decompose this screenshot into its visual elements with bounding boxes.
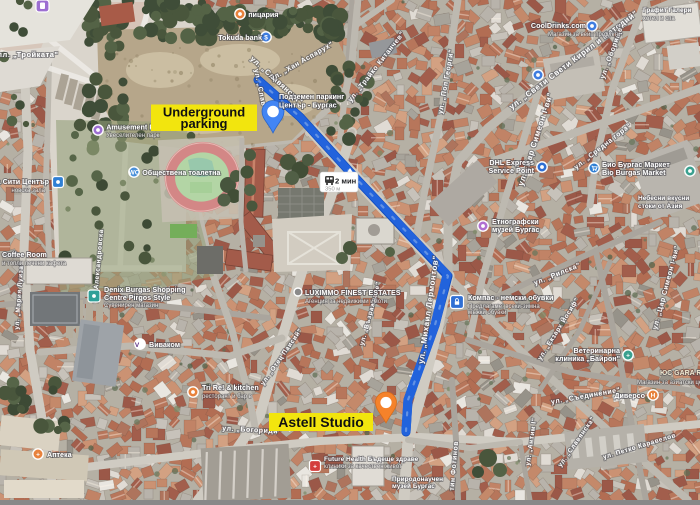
svg-text:музей Бургас: музей Бургас <box>492 225 539 234</box>
svg-text:Небесни вкусни: Небесни вкусни <box>638 194 689 202</box>
svg-text:parking: parking <box>181 116 228 131</box>
svg-text:и топли печени кафета: и топли печени кафета <box>2 261 67 267</box>
svg-text:Bio Burgas Market: Bio Burgas Market <box>602 168 666 177</box>
svg-text:пицария: пицария <box>248 10 278 19</box>
svg-text:$: $ <box>264 34 268 41</box>
svg-text:Агенция за недвижими имоти: Агенция за недвижими имоти <box>305 299 387 305</box>
svg-text:Виваком: Виваком <box>149 340 180 349</box>
svg-text:Обществена тоалетна: Обществена тоалетна <box>142 168 221 177</box>
svg-text:Център - Бургас: Център - Бургас <box>279 101 337 110</box>
svg-text:а Сити Център: а Сити Център <box>0 177 50 186</box>
svg-text:H: H <box>651 392 656 399</box>
svg-text:музей Бургас: музей Бургас <box>392 482 435 490</box>
svg-text:LUXIMMO FINEST ESTATES: LUXIMMO FINEST ESTATES <box>305 288 401 297</box>
svg-text:Astell Studio: Astell Studio <box>278 414 364 430</box>
svg-text:Tokuda bank: Tokuda bank <box>218 33 262 42</box>
svg-text:V: V <box>135 342 140 349</box>
svg-text:2 мин: 2 мин <box>335 177 357 186</box>
svg-text:Диверсо: Диверсо <box>614 391 645 400</box>
svg-text:хотел и спа: хотел и спа <box>643 16 675 22</box>
svg-text:+: + <box>313 463 317 470</box>
svg-text:+: + <box>626 352 630 359</box>
svg-text:Магазин за вейп продукти: Магазин за вейп продукти <box>548 31 620 38</box>
svg-text:пл. „Тройката": пл. „Тройката" <box>0 50 58 59</box>
svg-text:клиника „Байрон": клиника „Байрон" <box>555 354 620 363</box>
svg-text:+: + <box>36 451 40 458</box>
svg-text:Магазин за азиатски цен.: Магазин за азиатски цен. <box>637 380 700 386</box>
svg-text:мъжки обувки: мъжки обувки <box>468 310 506 316</box>
svg-text:новска зала: новска зала <box>12 188 46 194</box>
svg-text:350 м: 350 м <box>325 187 340 193</box>
svg-text:Centre Pirgos Style: Centre Pirgos Style <box>104 293 170 302</box>
svg-text:Графит Галери: Графит Галери <box>643 7 692 14</box>
svg-text:Coffee Room: Coffee Room <box>2 250 47 259</box>
svg-text:стоки от Азия: стоки от Азия <box>638 203 682 210</box>
svg-text:WC: WC <box>129 169 140 176</box>
svg-text:Аптека: Аптека <box>47 450 73 459</box>
svg-text:Сувенирен магазин: Сувенирен магазин <box>104 303 158 309</box>
svg-text:Компас - немски обувки: Компас - немски обувки <box>468 293 553 302</box>
svg-text:CoolDrinks.com: CoolDrinks.com <box>531 21 586 30</box>
svg-text:клиники за качествен живот: клиники за качествен живот <box>324 464 402 470</box>
svg-text:Future Health Бъдеще здраве: Future Health Бъдеще здраве <box>324 456 419 463</box>
svg-text:Service Point: Service Point <box>488 166 534 175</box>
svg-text:ресторант и бар в: ресторант и бар в <box>202 394 252 400</box>
svg-text:Увеселителен парк: Увеселителен парк <box>106 133 159 139</box>
svg-text:Природонаучен: Природонаучен <box>392 476 443 483</box>
svg-text:Tri Re! & kitchen: Tri Re! & kitchen <box>202 383 259 392</box>
svg-text:ЮС GARA RO: ЮС GARA RO <box>660 370 700 377</box>
